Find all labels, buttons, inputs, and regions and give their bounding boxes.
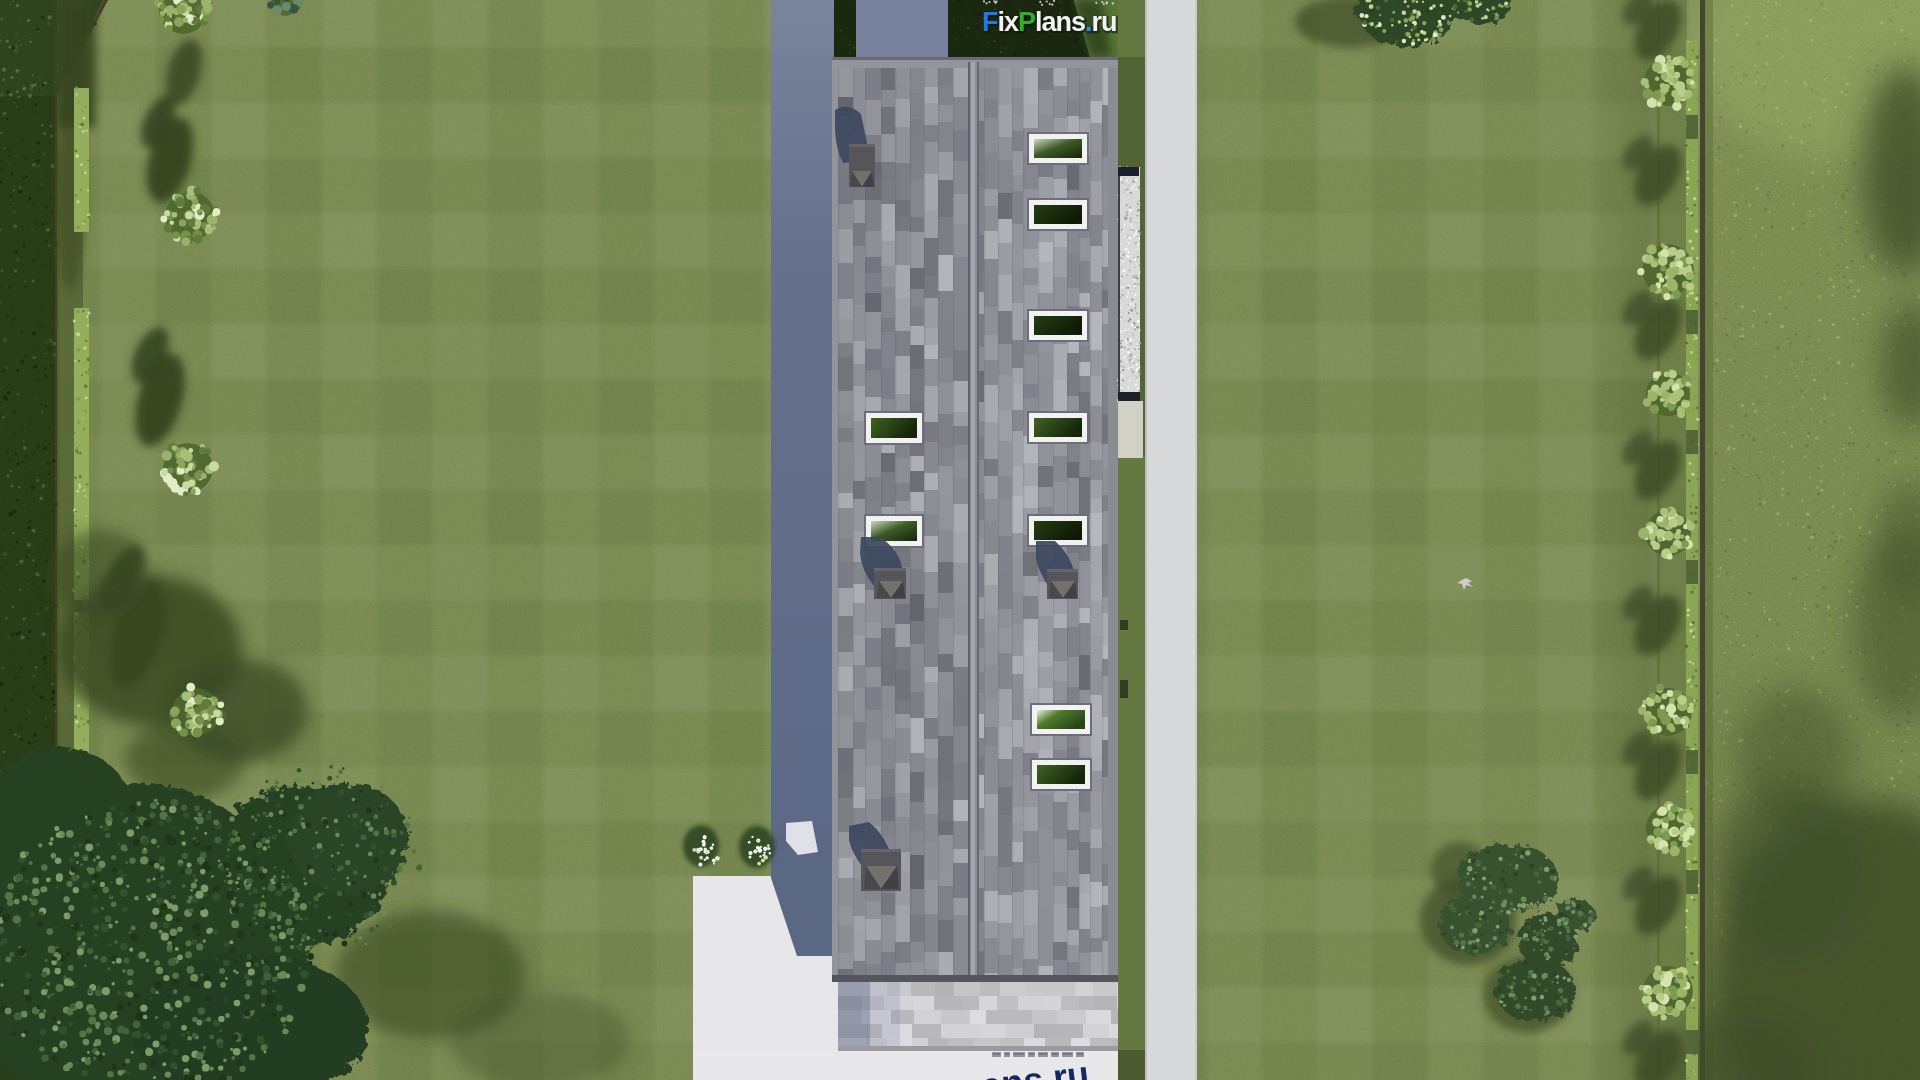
svg-text:FixPlans.ru: FixPlans.ru — [982, 7, 1117, 37]
